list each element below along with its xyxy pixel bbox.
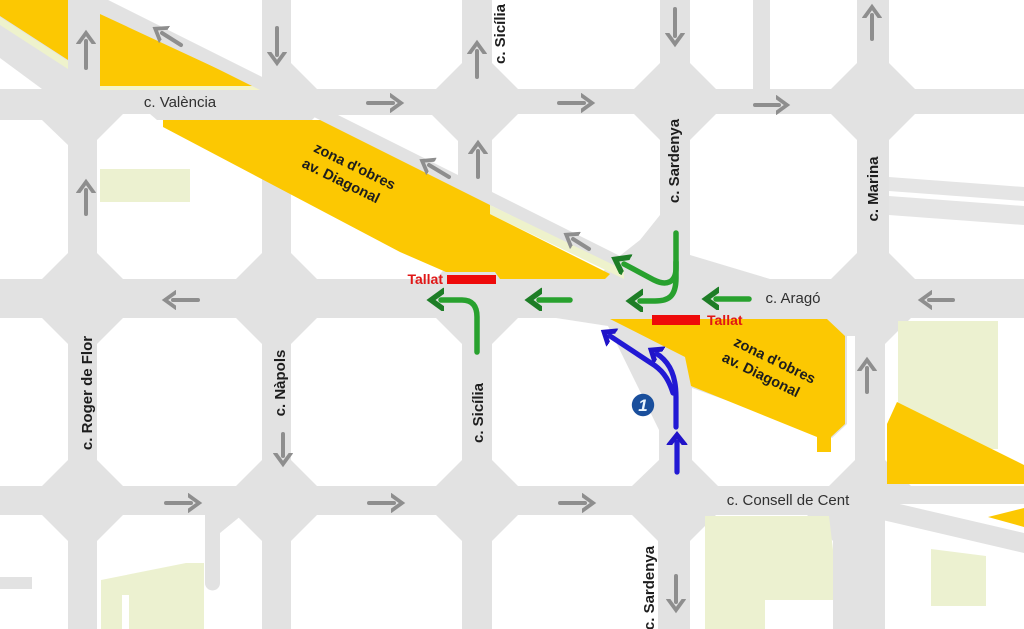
svg-text:Tallat: Tallat: [407, 271, 443, 287]
svg-text:c. Sicília: c. Sicília: [492, 3, 509, 64]
svg-text:c. Sardenya: c. Sardenya: [666, 118, 683, 203]
svg-text:c. Sicília: c. Sicília: [470, 382, 487, 443]
svg-text:c. Sardenya: c. Sardenya: [641, 545, 658, 629]
svg-text:c. Roger de Flor: c. Roger de Flor: [79, 336, 96, 450]
svg-text:Tallat: Tallat: [707, 312, 743, 328]
svg-text:c. Nàpols: c. Nàpols: [272, 350, 289, 417]
svg-text:c. Aragó: c. Aragó: [765, 290, 820, 307]
svg-text:c. Consell de Cent: c. Consell de Cent: [727, 492, 850, 509]
svg-text:1: 1: [638, 396, 647, 415]
svg-text:c. València: c. València: [144, 94, 217, 111]
svg-text:c. Marina: c. Marina: [865, 156, 882, 222]
